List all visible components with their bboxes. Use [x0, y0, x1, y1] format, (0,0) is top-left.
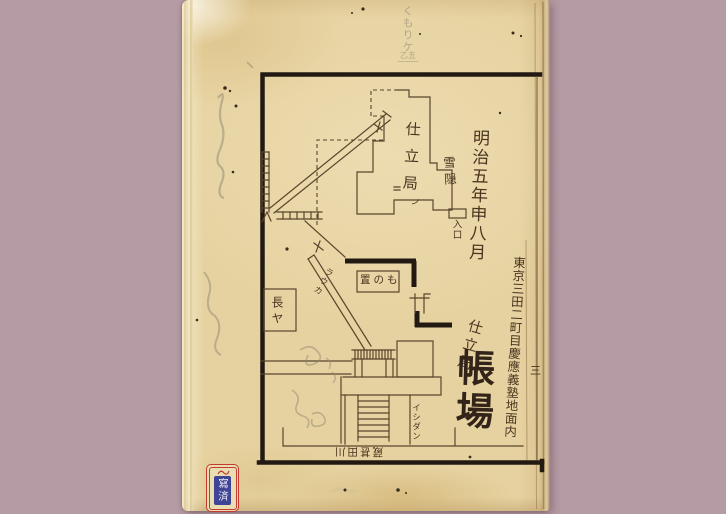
stairs-label: イシダン [412, 403, 421, 441]
paper-left-edge [182, 0, 193, 511]
paper-sheet [182, 0, 549, 511]
building-label: 仕立局 [400, 121, 419, 203]
page-title: 帳場 [451, 347, 492, 434]
seal-frame: 寫済 [209, 467, 237, 510]
pencil-note-boxed: 乙五 [398, 52, 418, 62]
pencil-note-column: くもりケ [401, 5, 412, 53]
street-name-label: 蔵甚田川 [326, 445, 390, 456]
copy-seal: 寫済 [206, 464, 239, 512]
paper-right-edge [543, 0, 550, 511]
entrance-label: 入口 [450, 219, 460, 240]
backdrop: くもりケ 乙五 明治五年申八月 仕立局 ノ 雪隠 入口 置のも 長ヤ ラウカ イ… [0, 0, 726, 514]
seal-text: 寫済 [214, 476, 231, 505]
annex-label: 雪隠 [441, 156, 455, 190]
storage-label: 置のも [360, 276, 398, 287]
date-column: 明治五年申八月 [467, 129, 489, 263]
rowhouse-label: 長ヤ [271, 296, 283, 328]
folio-number: 三 [530, 366, 541, 377]
seal-ornament-icon [216, 469, 230, 475]
